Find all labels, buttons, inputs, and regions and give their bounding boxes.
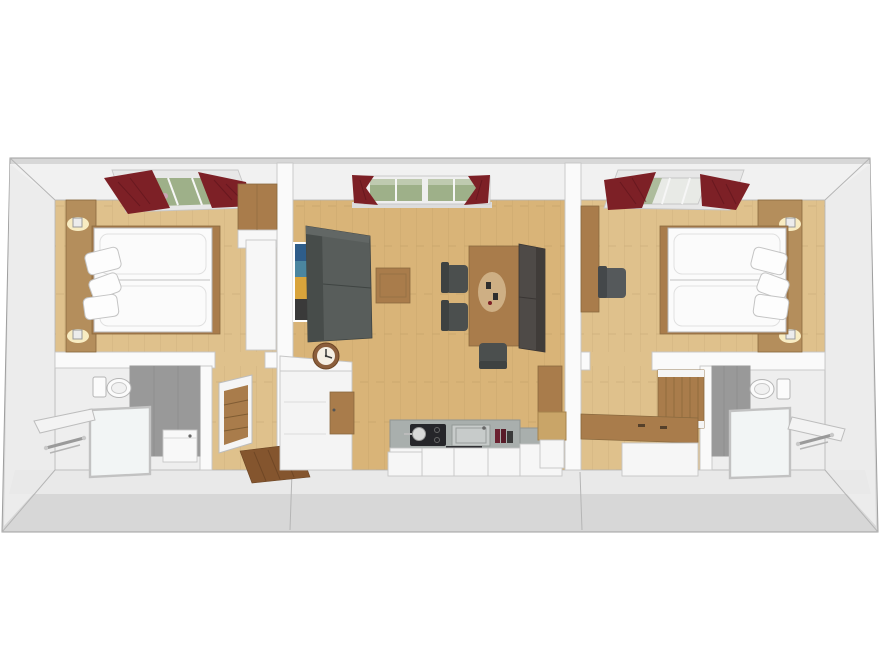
dining-chair — [479, 343, 507, 369]
cooktop — [404, 424, 446, 446]
bench-handle — [638, 424, 645, 427]
desk-chair — [598, 266, 626, 298]
wall-living-right-unit — [565, 163, 581, 470]
left-roof-window — [104, 170, 252, 214]
desk — [581, 206, 599, 312]
double-bed — [660, 226, 791, 334]
wall-bench — [519, 244, 545, 352]
wall-stub-right — [581, 352, 590, 370]
right-roof-window — [604, 170, 750, 210]
sofa-backrest — [306, 226, 324, 342]
door-handle — [333, 409, 336, 412]
floorplan-3d-render — [0, 0, 880, 660]
sink — [452, 425, 490, 446]
bottles — [495, 429, 513, 443]
pillows — [83, 246, 123, 320]
bench-backrest — [536, 247, 545, 352]
drawer-dresser — [219, 375, 252, 453]
wood-step — [538, 366, 566, 468]
faucet — [482, 426, 486, 430]
wall-left-bath-hall — [200, 366, 212, 470]
sideboard — [280, 356, 354, 470]
shower-glass — [90, 407, 150, 477]
kitchenette — [388, 420, 562, 476]
wall-lamp — [67, 329, 89, 343]
floorplan-viewport[interactable] — [0, 0, 880, 660]
toilet — [93, 377, 131, 398]
coffee-table — [376, 268, 410, 303]
cabinet-left — [388, 452, 422, 476]
white-dresser — [246, 240, 276, 350]
wall-lamp — [67, 217, 89, 231]
bench-handle — [660, 426, 667, 429]
dining-chair — [441, 300, 468, 331]
washbasin-cabinet — [163, 430, 197, 462]
clock — [313, 343, 339, 369]
table-highlight — [478, 272, 506, 312]
pan — [413, 428, 426, 441]
wall-stub-left — [265, 352, 277, 368]
shower-glass — [730, 408, 790, 478]
sofa — [306, 226, 372, 342]
wardrobe — [238, 184, 277, 248]
double-bed — [83, 226, 220, 334]
sideboard-wood-door — [330, 392, 354, 434]
toilet — [750, 379, 790, 399]
faucet — [188, 434, 191, 437]
dining-chair — [441, 262, 468, 293]
living-window — [352, 175, 492, 208]
